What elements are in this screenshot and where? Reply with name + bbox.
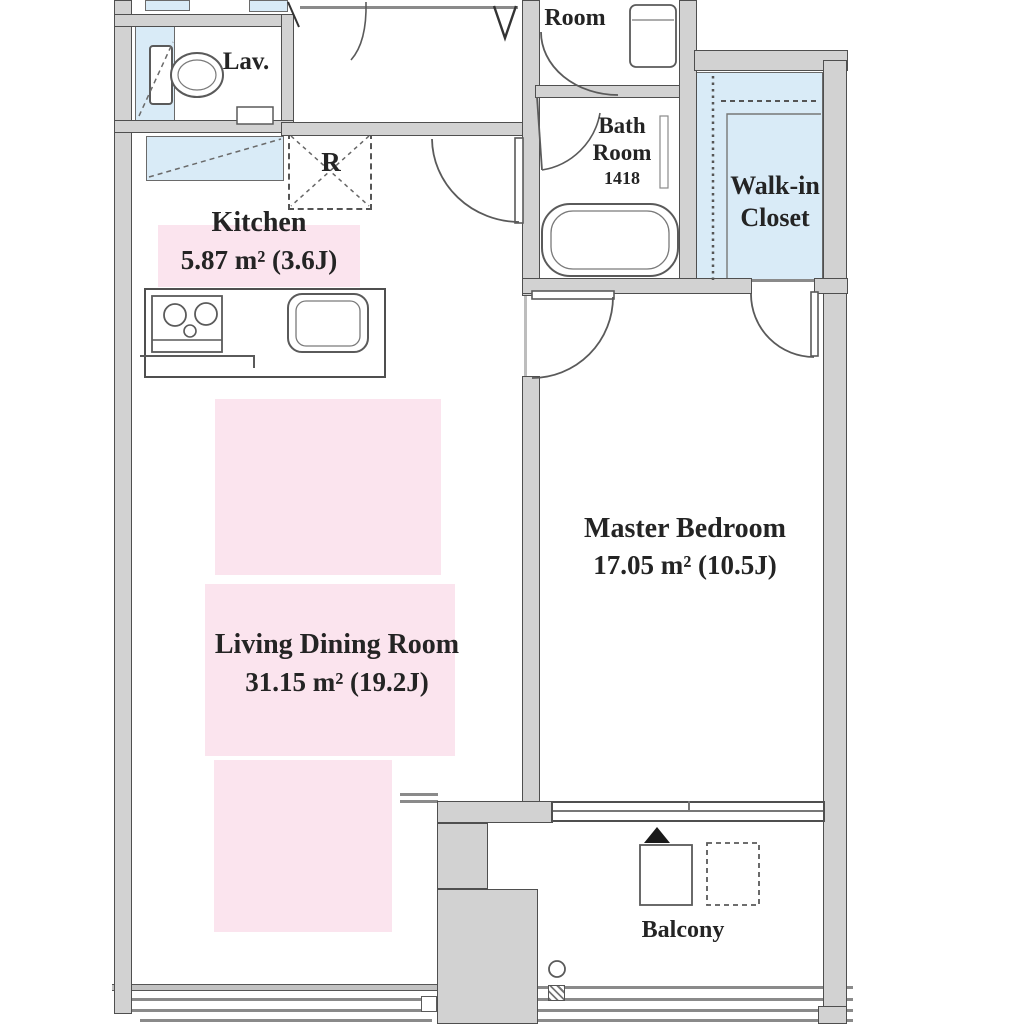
entry-door-arc <box>351 2 366 60</box>
bath-room-label-line2: Room <box>567 141 677 166</box>
closet-door-arc <box>751 294 814 357</box>
ac-unit-icon <box>640 845 692 905</box>
kitchen-area-label: 5.87 m² (3.6J) <box>148 246 370 275</box>
living-dining-area-label: 31.15 m² (19.2J) <box>192 668 482 697</box>
kitchen-label: Kitchen <box>158 208 360 238</box>
walk-in-closet-label-line2: Closet <box>712 204 838 232</box>
bath-door-leaf <box>537 97 542 170</box>
dressing-room-label-line2: Room <box>510 6 640 32</box>
ldk-door-arc <box>432 139 519 222</box>
closet-door-leaf <box>811 292 818 356</box>
bedroom-door-arc <box>532 297 613 378</box>
toilet-tank-icon <box>150 46 172 104</box>
kitchen-cabinet-diagonal <box>149 139 281 177</box>
ldk-door-leaf <box>515 138 523 223</box>
bath-room-size-label: 1418 <box>582 169 662 188</box>
balcony-label: Balcony <box>627 918 739 944</box>
master-bedroom-label: Master Bedroom <box>545 514 825 544</box>
bedroom-door-leaf <box>532 291 614 299</box>
north-arrow-icon <box>644 827 670 843</box>
dressing-door-arc <box>541 32 618 95</box>
fixtures-layer <box>0 0 1024 1024</box>
entry-door-leaf <box>288 2 299 27</box>
ac-unit-dashed-icon <box>707 843 759 905</box>
lavatory-label: Lav. <box>206 48 286 75</box>
living-dining-label: Living Dining Room <box>192 630 482 660</box>
bath-room-label-line1: Bath <box>572 114 672 139</box>
walk-in-closet-label-line1: Walk-in <box>712 172 838 200</box>
drain-icon <box>549 961 565 977</box>
refrigerator-label: R <box>316 148 346 177</box>
bathtub-icon <box>542 204 678 276</box>
master-bedroom-area-label: 17.05 m² (10.5J) <box>545 551 825 580</box>
lavatory-counter-icon <box>237 107 273 124</box>
floor-plan: Dressing Room Lav. Kitchen 5.87 m² (3.6J… <box>0 0 1024 1024</box>
